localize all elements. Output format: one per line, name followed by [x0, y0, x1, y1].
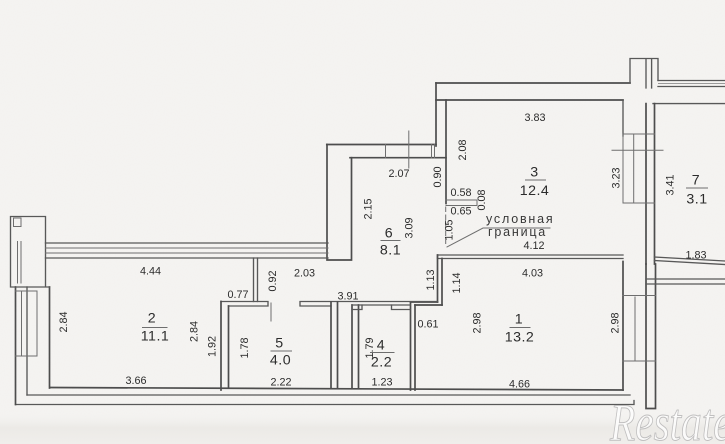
svg-text:1.78: 1.78 [239, 337, 251, 358]
svg-text:0.77: 0.77 [227, 289, 248, 301]
svg-text:1.23: 1.23 [371, 377, 392, 389]
svg-text:1.13: 1.13 [425, 269, 437, 290]
svg-text:3.66: 3.66 [125, 375, 146, 387]
svg-text:2.84: 2.84 [189, 321, 201, 342]
svg-text:4.0: 4.0 [270, 353, 291, 369]
svg-text:2.84: 2.84 [58, 311, 70, 332]
svg-text:4.44: 4.44 [140, 266, 161, 278]
svg-text:0.08: 0.08 [476, 189, 488, 210]
svg-text:1.05: 1.05 [444, 219, 456, 240]
svg-text:1: 1 [515, 312, 523, 328]
svg-text:11.1: 11.1 [141, 329, 170, 345]
svg-text:13.2: 13.2 [505, 330, 535, 346]
svg-text:0.65: 0.65 [450, 206, 471, 218]
svg-text:3.23: 3.23 [611, 167, 623, 188]
svg-text:2.08: 2.08 [457, 139, 469, 160]
svg-text:2.98: 2.98 [610, 312, 622, 333]
svg-text:2.03: 2.03 [294, 268, 315, 280]
svg-text:4.66: 4.66 [509, 379, 530, 391]
svg-text:4.03: 4.03 [522, 268, 543, 280]
svg-text:12.4: 12.4 [520, 183, 550, 199]
svg-text:2: 2 [148, 311, 156, 327]
svg-text:граница: граница [488, 225, 547, 239]
svg-text:1.92: 1.92 [207, 336, 219, 357]
svg-text:0.61: 0.61 [417, 319, 438, 331]
svg-text:3.1: 3.1 [686, 192, 707, 208]
svg-text:2.07: 2.07 [388, 168, 409, 180]
svg-text:2.22: 2.22 [270, 377, 291, 389]
svg-text:3: 3 [530, 165, 538, 181]
svg-text:4.12: 4.12 [523, 240, 544, 252]
svg-text:2.15: 2.15 [363, 198, 375, 219]
svg-text:2.98: 2.98 [471, 312, 483, 333]
svg-text:5: 5 [275, 336, 283, 352]
svg-text:0.58: 0.58 [450, 187, 471, 199]
svg-text:Restate: Restate [609, 394, 725, 444]
svg-text:3.91: 3.91 [337, 291, 358, 303]
svg-text:3.41: 3.41 [665, 174, 677, 195]
svg-text:3.83: 3.83 [524, 112, 545, 124]
svg-text:7: 7 [692, 173, 700, 189]
svg-text:8.1: 8.1 [380, 243, 401, 259]
svg-text:1.83: 1.83 [685, 250, 706, 262]
svg-text:0.92: 0.92 [267, 270, 279, 291]
svg-text:0.90: 0.90 [432, 166, 444, 187]
svg-text:4: 4 [377, 338, 385, 354]
svg-text:1.14: 1.14 [451, 272, 463, 293]
svg-text:3.09: 3.09 [404, 217, 416, 238]
svg-text:6: 6 [385, 226, 393, 242]
svg-text:условная: условная [486, 212, 554, 226]
svg-text:2.2: 2.2 [371, 355, 392, 371]
